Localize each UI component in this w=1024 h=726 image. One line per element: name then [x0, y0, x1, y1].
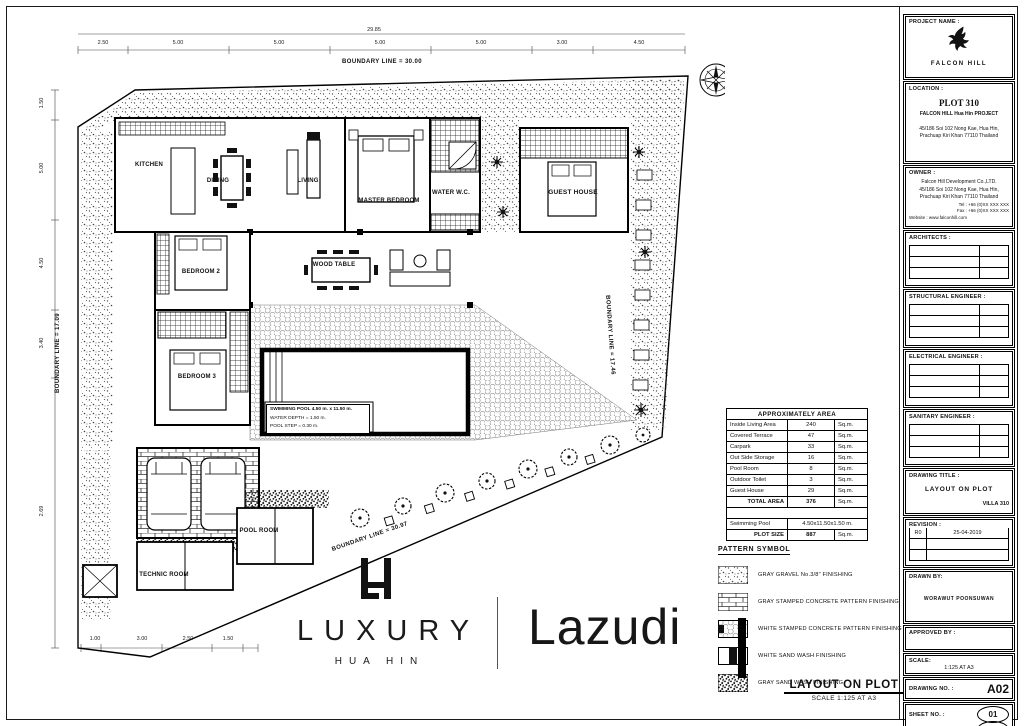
title-block-column: PROJECT NAME : FALCON HILL LOCATION : PL… [903, 16, 1015, 726]
dim-left-4: 2.69 [39, 495, 45, 527]
owner-box: OWNER : Falcon Hill Development Co.,LTD.… [905, 167, 1013, 227]
room-label-bedroom-3: BEDROOM 3 [162, 374, 232, 380]
pool-info-box: SWIMMING POOL 4.50 m. x 11.50 m. WATER D… [266, 404, 370, 434]
drawing-no-box: DRAWING NO. : A02 [905, 679, 1013, 699]
legend-connector-bar [738, 618, 746, 678]
architects-table [909, 245, 1009, 279]
layout-on-plot-title: LAYOUT ON PLOT [784, 679, 904, 694]
villa-number: VILLA 310 [909, 501, 1009, 507]
room-label-water-wc: WATER W.C. [418, 190, 484, 196]
bedroom3-wing [155, 310, 250, 425]
electrical-table [909, 364, 1009, 398]
luxury-wordmark: LUXURY [286, 615, 466, 648]
structural-engineer-box: STRUCTURAL ENGINEER : [905, 291, 1013, 346]
dim-top-2: 5.00 [259, 40, 299, 46]
approved-by-box: APPROVED BY : [905, 627, 1013, 650]
revision-box: REVISION : R025-04-2019 [905, 519, 1013, 566]
gravel-swatch-icon [718, 566, 748, 584]
table-row: Pool Room8Sq.m. [727, 464, 868, 475]
boundary-label-left: BOUNDARY LINE = 17.09 [55, 313, 61, 393]
revision-row [909, 539, 1009, 550]
room-label-bedroom-2: BEDROOM 2 [166, 269, 236, 275]
list-item: GRAY STAMPED CONCRETE PATTERN FINISHING [718, 588, 888, 615]
legend-title: PATTERN SYMBOL [718, 546, 790, 555]
drawing-title-box: DRAWING TITLE : LAYOUT ON PLOT VILLA 310 [905, 470, 1013, 514]
scale-box: SCALE: 1:125 AT A3 [905, 655, 1013, 674]
area-table: APPROXIMATELY AREA Inside Living Area240… [726, 408, 868, 541]
room-label-guest-house: GUEST HOUSE [530, 189, 616, 196]
dim-left-3: 3.40 [39, 327, 45, 359]
room-label-technic-room: TECHNIC ROOM [126, 572, 202, 578]
scale-note: SCALE 1:125 AT A3 [784, 695, 904, 702]
luxury-hua-hin-logo: LUXURY HUA HIN [286, 556, 466, 667]
plot-number: PLOT 310 [909, 98, 1009, 108]
luxury-subtitle: HUA HIN [286, 656, 466, 667]
project-name-box: PROJECT NAME : FALCON HILL [905, 16, 1013, 78]
dim-left-0: 1.50 [39, 87, 45, 119]
dim-top-5: 3.00 [542, 40, 582, 46]
compass-icon [700, 64, 725, 96]
project-name: FALCON HILL [909, 60, 1009, 69]
revision-row: R025-04-2019 [909, 528, 1009, 539]
dim-left-1: 5.00 [39, 152, 45, 184]
dim-bottom-2: 2.50 [170, 636, 206, 642]
dim-top-0: 2.50 [83, 40, 123, 46]
logo-divider [497, 597, 498, 669]
room-label-master-bedroom: MASTER BEDROOM [346, 198, 432, 204]
dim-top-3: 5.00 [360, 40, 400, 46]
structural-table [909, 304, 1009, 338]
electrical-engineer-box: ELECTRICAL ENGINEER : [905, 351, 1013, 406]
drawn-by-box: DRAWN BY: WORAWUT POONSUWAN [905, 571, 1013, 622]
table-row-total: TOTAL AREA376Sq.m. [727, 497, 868, 508]
table-row: Carpark33Sq.m. [727, 442, 868, 453]
falcon-logo-icon [942, 25, 976, 55]
master-bedroom-furniture [349, 130, 423, 202]
luxury-monogram-icon [355, 556, 397, 602]
pool-info-line-3: POOL STEP = 0.30 m. [270, 423, 366, 432]
total-sheets-value: 01 [977, 721, 1009, 726]
dim-top-1: 5.00 [158, 40, 198, 46]
terrace-sofa [390, 250, 450, 286]
gray-stamped-swatch-icon [718, 593, 748, 611]
drawing-title-value: LAYOUT ON PLOT [909, 485, 1009, 495]
architects-box: ARCHITECTS : [905, 232, 1013, 286]
room-label-pool-room: POOL ROOM [226, 528, 292, 534]
lazudi-logo: Lazudi [528, 598, 681, 656]
table-row: Out Side Storage16Sq.m. [727, 453, 868, 464]
pool-info-line-1: SWIMMING POOL 4.50 m. x 11.50 m. [270, 406, 366, 415]
drawing-caption: LAYOUT ON PLOT SCALE 1:125 AT A3 [784, 679, 904, 702]
list-item: GRAY GRAVEL No.3/8" FINISHING [718, 561, 888, 588]
table-row: Outdoor Toilet3Sq.m. [727, 475, 868, 486]
room-label-kitchen: KITCHEN [126, 162, 172, 168]
area-table-title: APPROXIMATELY AREA [727, 409, 868, 420]
room-label-living: LIVING [286, 178, 330, 184]
drawing-no-value: A02 [987, 682, 1009, 696]
table-row: Inside Living Area240Sq.m. [727, 420, 868, 431]
sheet-no-box: SHEET NO. : 01 TOTAL SHEETS : 01 [905, 704, 1013, 726]
title-block-divider [899, 6, 900, 720]
scale-value: 1:125 AT A3 [909, 664, 1009, 672]
dim-left-2: 4.50 [39, 247, 45, 279]
guest-house [520, 128, 628, 232]
revision-row [909, 550, 1009, 561]
room-label-dining: DINING [196, 178, 240, 184]
table-row: Guest House29Sq.m. [727, 486, 868, 497]
wood-table [304, 250, 378, 290]
drawing-sheet: 29.85 2.50 5.00 5.00 5.00 5.00 3.00 4.50… [0, 0, 1024, 726]
dim-top-6: 4.50 [619, 40, 659, 46]
room-label-wood-table: WOOD TABLE [298, 262, 370, 268]
table-row: Covered Terrace47Sq.m. [727, 431, 868, 442]
dim-bottom-3: 1.50 [210, 636, 246, 642]
dim-bottom-0: 1.00 [77, 636, 113, 642]
sanitary-table [909, 424, 1009, 458]
drawn-by-name: WORAWUT POONSUWAN [909, 596, 1009, 604]
dim-top-4: 5.00 [461, 40, 501, 46]
table-row-pool: Swimming Pool4.50x11.50x1.50 m. [727, 519, 868, 530]
sanitary-engineer-box: SANITARY ENGINEER : [905, 411, 1013, 465]
location-box: LOCATION : PLOT 310 FALCON HILL Hua Hin … [905, 83, 1013, 162]
dim-overall-top: 29.85 [344, 27, 404, 33]
table-row-spacer [727, 508, 868, 519]
dim-bottom-1: 3.00 [124, 636, 160, 642]
pool-info-line-2: WATER DEPTH = 1.50 m. [270, 415, 366, 424]
boundary-label-top: BOUNDARY LINE = 30.00 [302, 59, 462, 65]
diagonal-garden [351, 428, 650, 527]
